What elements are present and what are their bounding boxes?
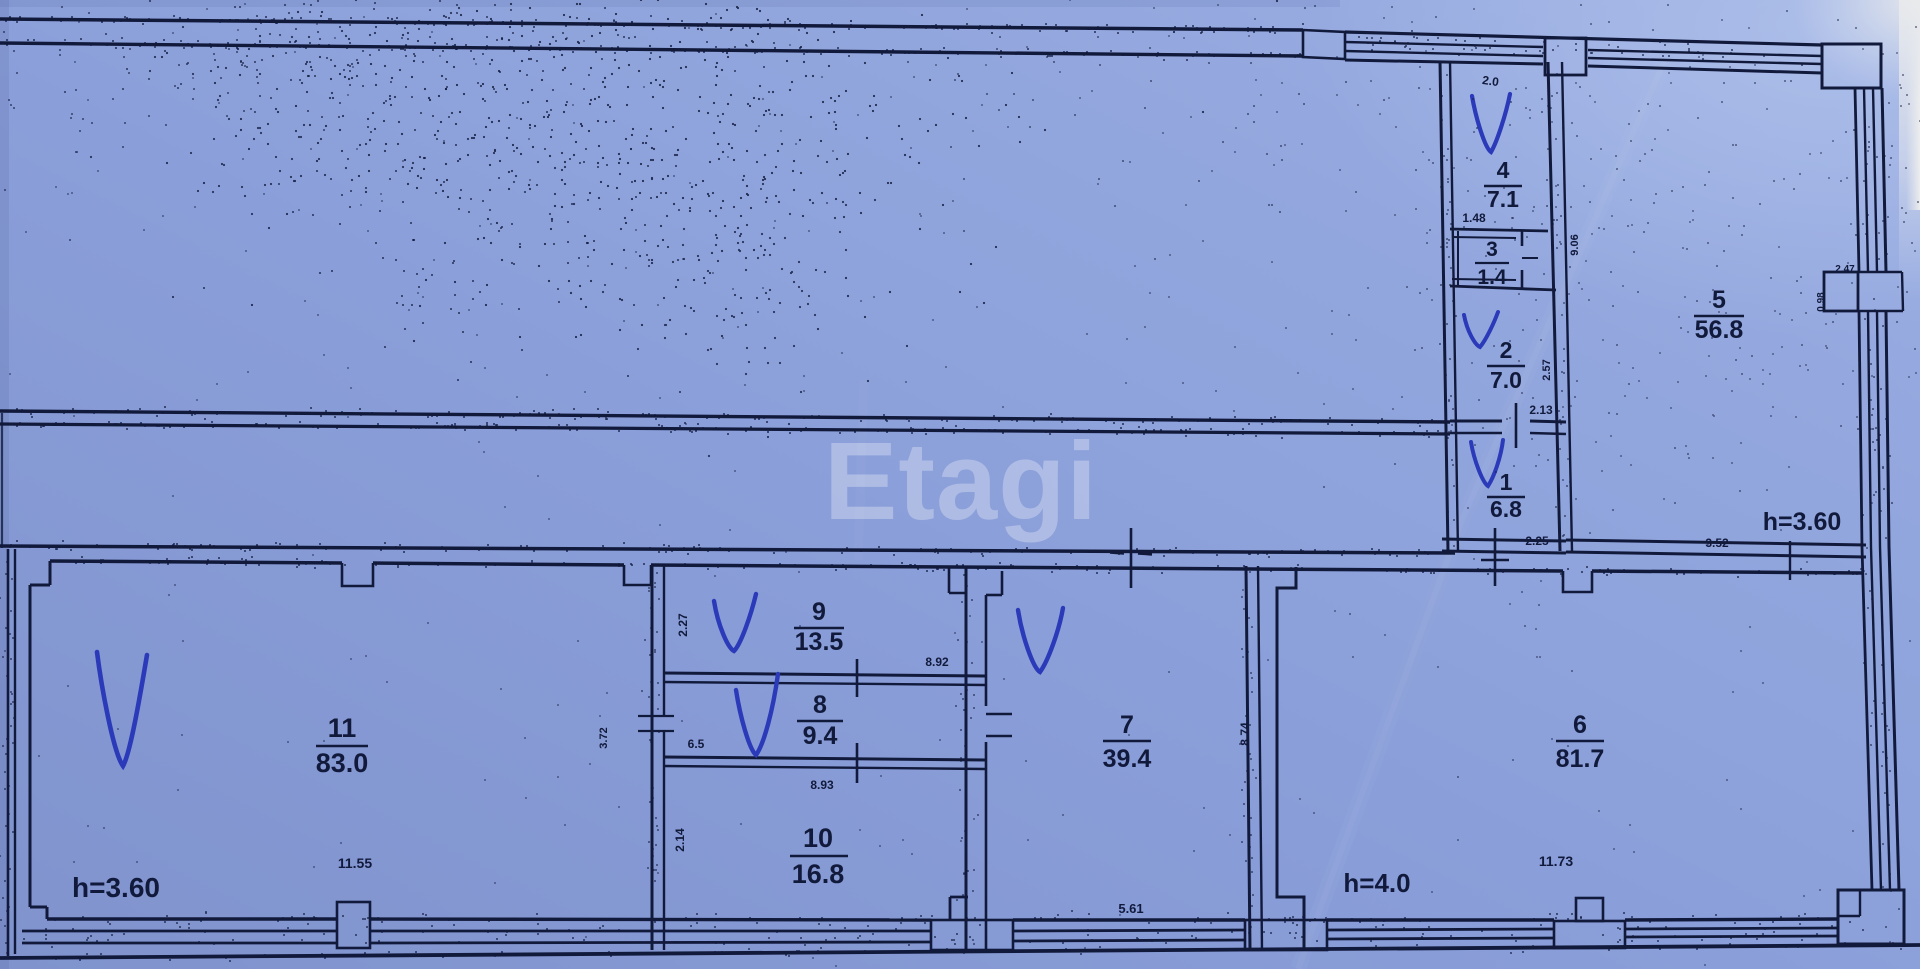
svg-text:2.13: 2.13 — [1529, 403, 1553, 417]
svg-text:2.25: 2.25 — [1525, 534, 1549, 548]
svg-text:2.14: 2.14 — [673, 828, 687, 852]
svg-text:3: 3 — [1486, 238, 1498, 261]
svg-text:13.5: 13.5 — [795, 628, 844, 656]
svg-text:2.57: 2.57 — [1541, 359, 1553, 380]
svg-text:39.4: 39.4 — [1103, 745, 1152, 773]
svg-text:6.8: 6.8 — [1490, 496, 1522, 522]
svg-text:Etagi: Etagi — [824, 420, 1098, 543]
svg-text:4: 4 — [1497, 157, 1510, 183]
svg-text:3.72: 3.72 — [598, 727, 610, 748]
svg-text:h=3.60: h=3.60 — [72, 872, 160, 903]
svg-text:0.98: 0.98 — [1816, 292, 1827, 312]
svg-text:1.48: 1.48 — [1462, 211, 1486, 225]
svg-text:9: 9 — [812, 598, 826, 626]
svg-text:h=3.60: h=3.60 — [1763, 508, 1842, 536]
svg-text:7.1: 7.1 — [1487, 186, 1519, 212]
svg-text:2.0: 2.0 — [1481, 73, 1500, 89]
svg-text:81.7: 81.7 — [1556, 745, 1605, 773]
svg-text:8.92: 8.92 — [925, 655, 949, 669]
svg-text:8.93: 8.93 — [810, 778, 834, 792]
svg-text:8: 8 — [813, 691, 827, 719]
svg-text:3.52: 3.52 — [1705, 536, 1729, 550]
svg-text:11.73: 11.73 — [1539, 853, 1573, 869]
svg-text:6.5: 6.5 — [688, 737, 705, 751]
svg-text:7.0: 7.0 — [1490, 367, 1522, 393]
svg-text:9.06: 9.06 — [1569, 234, 1581, 255]
svg-text:56.8: 56.8 — [1695, 316, 1744, 344]
svg-text:5.61: 5.61 — [1118, 901, 1143, 916]
svg-text:11.55: 11.55 — [338, 855, 372, 871]
svg-text:11: 11 — [328, 713, 357, 743]
svg-text:6: 6 — [1573, 711, 1587, 739]
svg-text:16.8: 16.8 — [792, 859, 845, 889]
svg-text:10: 10 — [803, 823, 833, 853]
svg-text:2.47: 2.47 — [1835, 264, 1855, 275]
svg-text:1.4: 1.4 — [1477, 266, 1507, 289]
svg-text:83.0: 83.0 — [316, 748, 369, 778]
svg-text:9.4: 9.4 — [803, 722, 838, 750]
svg-text:7: 7 — [1120, 711, 1134, 739]
svg-text:1: 1 — [1500, 469, 1513, 495]
svg-text:5: 5 — [1712, 286, 1726, 314]
svg-text:h=4.0: h=4.0 — [1343, 868, 1410, 898]
svg-text:2.27: 2.27 — [676, 613, 690, 637]
